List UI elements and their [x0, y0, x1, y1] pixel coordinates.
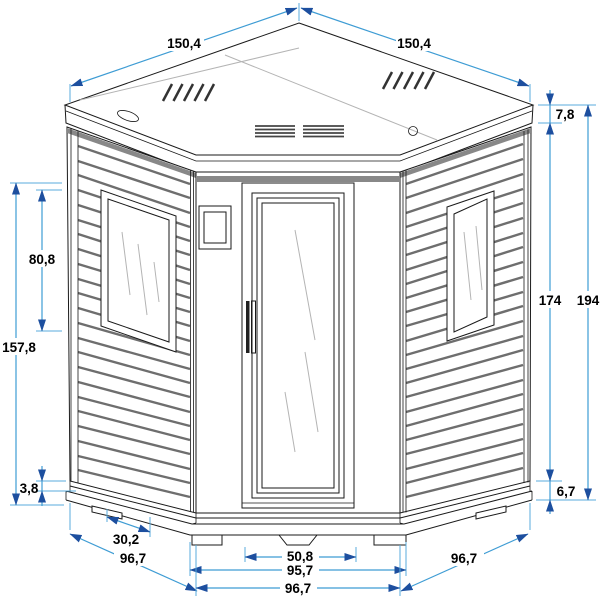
dim-door-base-width: 50,8 — [245, 547, 356, 564]
front-wall — [191, 170, 407, 513]
roof-top-face — [65, 23, 533, 155]
right-window — [447, 191, 494, 341]
dim-label-roof-left: 150,4 — [167, 36, 201, 51]
dim-label-foot-offset: 30,2 — [113, 532, 139, 547]
left-window-glass — [108, 199, 169, 342]
door-outer-frame — [242, 183, 354, 508]
technical-drawing-page: 150,4 150,4 7,8 174 6,7 194 80,8 — [0, 0, 600, 600]
dim-label-right-wall-width: 96,7 — [451, 551, 477, 566]
front-left-foot — [192, 535, 222, 545]
center-foot — [279, 535, 317, 545]
dim-label-roof-edge: 7,8 — [556, 107, 575, 122]
dim-total-height: 194 — [573, 105, 600, 500]
door-handle-bar — [246, 301, 250, 353]
dim-label-front-wall-width: 96,7 — [285, 581, 311, 596]
dim-label-base-trim: 3,8 — [20, 481, 39, 496]
dim-left-wall-width: 96,7 — [70, 503, 197, 591]
dim-wall-height: 174 — [534, 123, 566, 481]
dim-base-height: 6,7 — [536, 481, 596, 514]
dim-siding-height: 157,8 — [0, 183, 64, 505]
dim-label-front-base-width: 95,7 — [287, 563, 313, 578]
right-wall — [400, 127, 531, 513]
sauna-technical-drawing: 150,4 150,4 7,8 174 6,7 194 80,8 — [0, 0, 600, 600]
left-wall — [67, 127, 196, 513]
dim-label-base-height: 6,7 — [557, 484, 576, 499]
dim-label-wall-height: 174 — [539, 293, 562, 308]
dim-right-wall-width: 96,7 — [401, 503, 530, 591]
front-wall-top-shadow — [196, 176, 400, 182]
dim-label-window-height: 80,8 — [29, 252, 56, 267]
dim-label-total-height: 194 — [577, 293, 600, 308]
dim-window-height: 80,8 — [26, 190, 62, 331]
dim-label-siding-height: 157,8 — [2, 340, 36, 355]
right-window-glass — [454, 199, 487, 332]
dim-roof-edge-height: 7,8 — [538, 90, 596, 123]
dim-label-roof-right: 150,4 — [397, 36, 431, 51]
sauna-cabin — [65, 23, 533, 545]
front-right-foot — [374, 535, 406, 545]
dim-label-door-base-width: 50,8 — [287, 549, 314, 564]
dim-label-left-wall-width: 96,7 — [120, 551, 146, 566]
right-side-foot — [476, 506, 506, 519]
left-window — [101, 190, 176, 352]
door[interactable] — [242, 183, 354, 508]
